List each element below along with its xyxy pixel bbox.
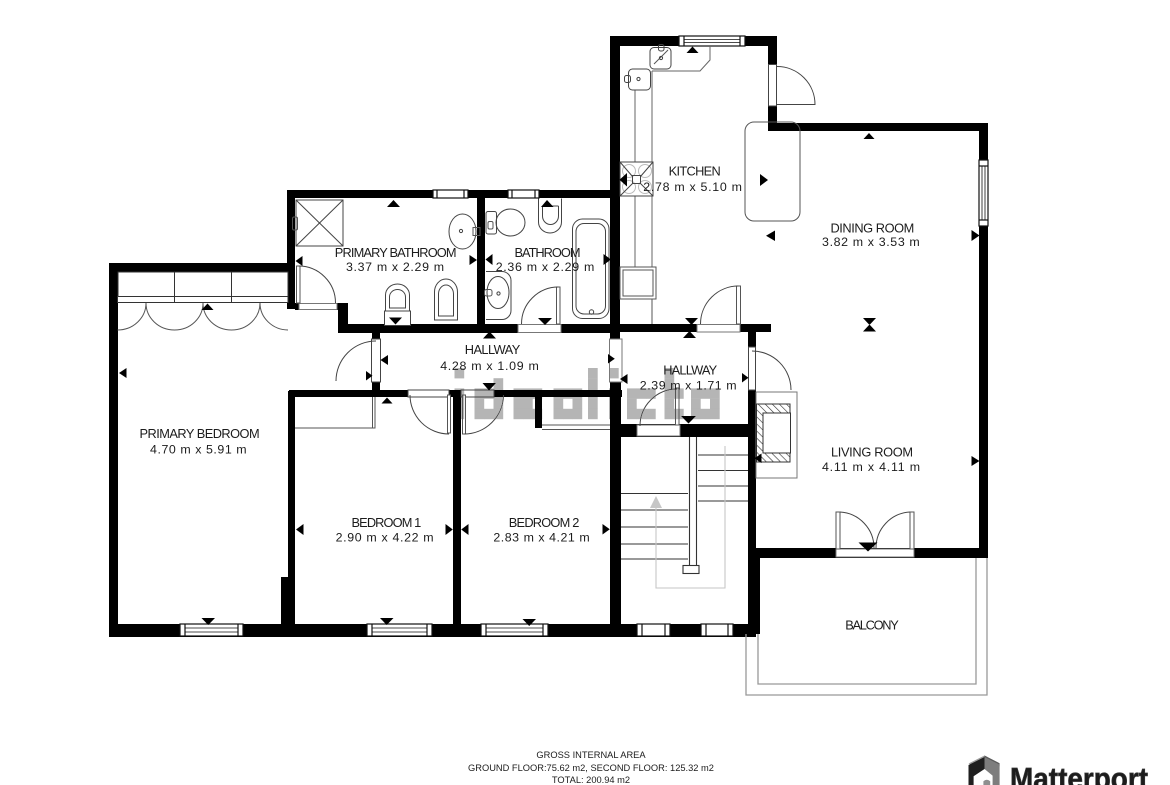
svg-text:4.11 m x 4.11 m: 4.11 m x 4.11 m bbox=[822, 460, 920, 474]
svg-text:LIVING ROOM: LIVING ROOM bbox=[831, 445, 913, 460]
svg-text:BEDROOM 1: BEDROOM 1 bbox=[352, 515, 422, 530]
svg-text:KITCHEN: KITCHEN bbox=[669, 164, 721, 179]
svg-text:HALLWAY: HALLWAY bbox=[663, 363, 717, 378]
svg-text:Matterport: Matterport bbox=[1010, 762, 1148, 785]
svg-text:TOTAL: 200.94 m2: TOTAL: 200.94 m2 bbox=[552, 775, 630, 785]
svg-text:2.90 m x 4.22 m: 2.90 m x 4.22 m bbox=[336, 531, 434, 545]
svg-text:3.82 m x 3.53 m: 3.82 m x 3.53 m bbox=[822, 235, 920, 249]
svg-text:PRIMARY BEDROOM: PRIMARY BEDROOM bbox=[140, 426, 260, 441]
svg-text:2.36 m x 2.29 m: 2.36 m x 2.29 m bbox=[496, 260, 595, 274]
svg-text:3.37 m x 2.29 m: 3.37 m x 2.29 m bbox=[346, 260, 444, 274]
svg-text:DINING ROOM: DINING ROOM bbox=[831, 221, 915, 236]
svg-text:BEDROOM 2: BEDROOM 2 bbox=[509, 515, 580, 530]
svg-text:BALCONY: BALCONY bbox=[845, 618, 899, 633]
svg-text:GROSS INTERNAL AREA: GROSS INTERNAL AREA bbox=[536, 750, 646, 760]
svg-text:2.83 m x 4.21 m: 2.83 m x 4.21 m bbox=[493, 531, 589, 545]
svg-text:GROUND FLOOR:75.62 m2, SECOND: GROUND FLOOR:75.62 m2, SECOND FLOOR: 125… bbox=[468, 763, 714, 773]
svg-text:PRIMARY BATHROOM: PRIMARY BATHROOM bbox=[335, 245, 457, 260]
svg-text:HALLWAY: HALLWAY bbox=[465, 342, 521, 357]
svg-text:4.28 m x 1.09 m: 4.28 m x 1.09 m bbox=[440, 359, 539, 373]
svg-text:BATHROOM: BATHROOM bbox=[514, 245, 580, 260]
svg-text:2.78 m x 5.10 m: 2.78 m x 5.10 m bbox=[643, 180, 742, 194]
svg-text:4.70 m x 5.91 m: 4.70 m x 5.91 m bbox=[150, 443, 247, 457]
svg-text:2.39 m x 1.71 m: 2.39 m x 1.71 m bbox=[640, 379, 737, 393]
